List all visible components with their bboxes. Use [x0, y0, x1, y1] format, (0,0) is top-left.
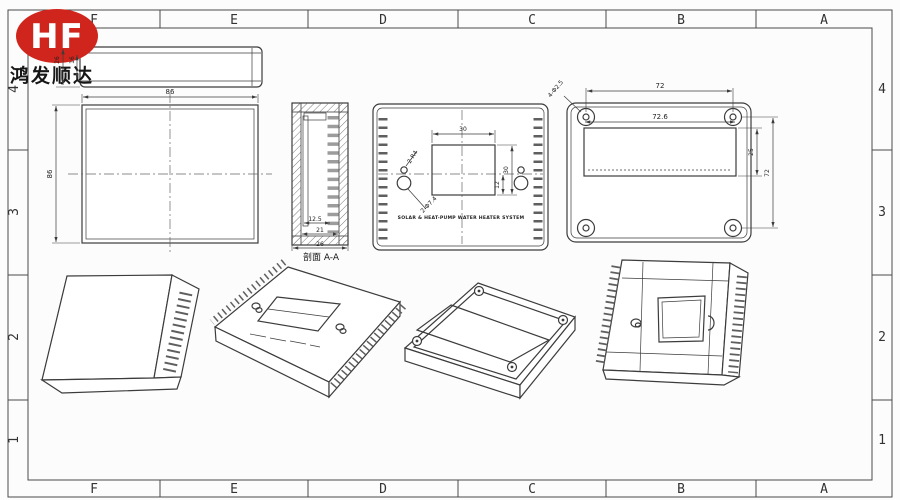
grid-col-bottom-f: F — [90, 482, 98, 497]
dim-window-width: 30 — [459, 126, 467, 133]
cad-drawing-sheet: F E D C B A F E D C B A 4 3 2 1 4 3 2 1 … — [0, 0, 900, 500]
dim-back-height: 72 — [764, 169, 771, 177]
grid-col-top-c: C — [528, 13, 536, 28]
company-name: 鸿发顺达 — [10, 64, 94, 87]
grid-row-right-4: 4 — [878, 82, 886, 97]
logo-text: HF — [30, 17, 84, 57]
grid-col-bottom-e: E — [230, 482, 238, 497]
drawing-canvas: F E D C B A F E D C B A 4 3 2 1 4 3 2 1 … — [0, 0, 900, 500]
view-back: 72 72.6 25 72 4-Φ2.5 — [547, 79, 778, 242]
dim-front-height: 86 — [46, 169, 54, 178]
grid-col-bottom-c: C — [528, 482, 536, 497]
grid-row-left-2: 2 — [7, 333, 22, 341]
iso-front-cover — [212, 262, 403, 397]
label-corner-holes: 4-Φ2.5 — [547, 79, 565, 99]
dim-opening-width: 72.6 — [652, 113, 668, 121]
iso-base-tray — [405, 283, 575, 398]
dim-section-21: 21 — [316, 227, 324, 234]
panel-caption: SOLAR & HEAT-PUMP WATER HEATER SYSTEM — [398, 215, 525, 221]
grid-col-bottom-a: A — [820, 482, 828, 497]
dim-section-26: 26 — [316, 241, 324, 248]
grid-row-right-3: 3 — [878, 205, 886, 220]
view-front-square: 86 86 — [46, 88, 272, 255]
iso-cover-inside — [600, 260, 748, 385]
iso-back-shell — [42, 275, 199, 393]
grid-col-top-a: A — [820, 13, 828, 28]
dim-top-26: 26 — [54, 56, 61, 64]
dim-section-12-5: 12.5 — [308, 216, 322, 223]
grid-row-right-1: 1 — [878, 433, 886, 448]
grid-col-top-e: E — [230, 13, 238, 28]
dim-opening-height: 25 — [748, 148, 755, 156]
view-panel-front: 2-R4 2-Φ7.4 30 30 12 SOLAR & HEAT-PUMP W… — [373, 104, 548, 250]
grid-row-left-1: 1 — [7, 436, 22, 444]
dim-window-height: 30 — [503, 166, 510, 174]
grid-col-bottom-d: D — [379, 482, 387, 497]
section-label: 剖面 A-A — [303, 251, 340, 263]
grid-col-top-d: D — [379, 13, 387, 28]
logo: HF 鸿发顺达 — [10, 9, 98, 87]
view-section: 12.5 21 26 剖面 A-A — [292, 103, 348, 263]
grid-row-right-2: 2 — [878, 330, 886, 345]
dim-top-16: 16 — [69, 56, 76, 64]
dim-center-offset: 12 — [494, 181, 501, 189]
grid-col-top-b: B — [677, 13, 685, 28]
dim-front-width: 86 — [166, 88, 175, 96]
dim-hole-span: 72 — [656, 82, 665, 90]
grid-row-left-3: 3 — [7, 208, 22, 216]
grid-col-bottom-b: B — [677, 482, 685, 497]
